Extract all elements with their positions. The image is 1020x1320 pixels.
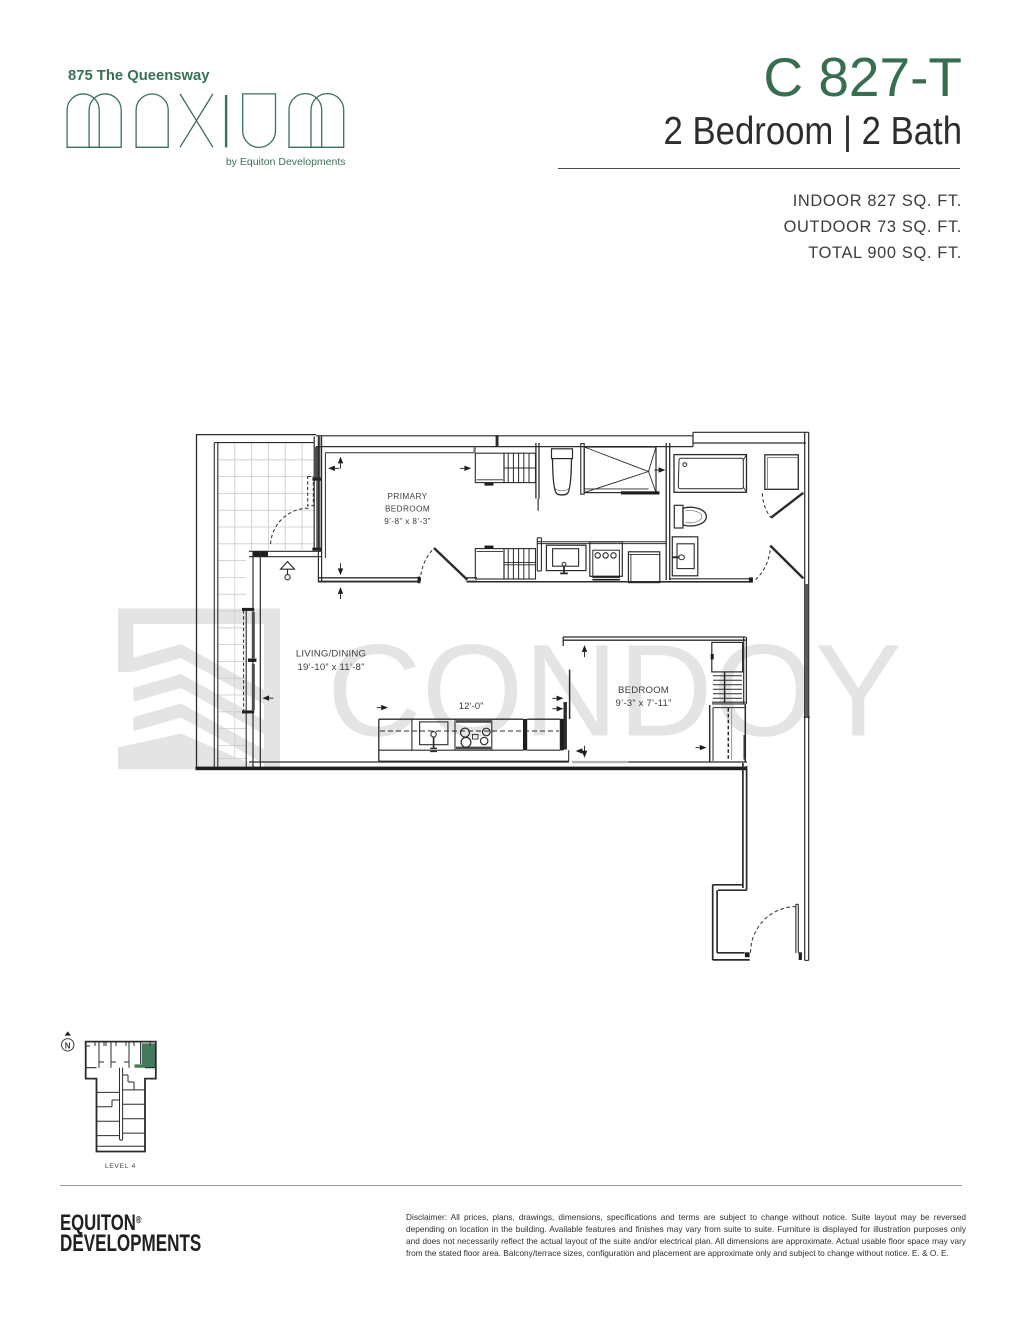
svg-text:BEDROOM: BEDROOM: [385, 504, 430, 513]
svg-text:9’-8” x 8’-3”: 9’-8” x 8’-3”: [384, 517, 431, 526]
svg-text:N: N: [65, 1041, 71, 1050]
svg-text:9’-3” x 7’-11”: 9’-3” x 7’-11”: [616, 698, 672, 709]
svg-text:BEDROOM: BEDROOM: [618, 685, 669, 696]
svg-text:PRIMARY: PRIMARY: [388, 492, 428, 501]
svg-text:12’-0”: 12’-0”: [459, 701, 484, 712]
